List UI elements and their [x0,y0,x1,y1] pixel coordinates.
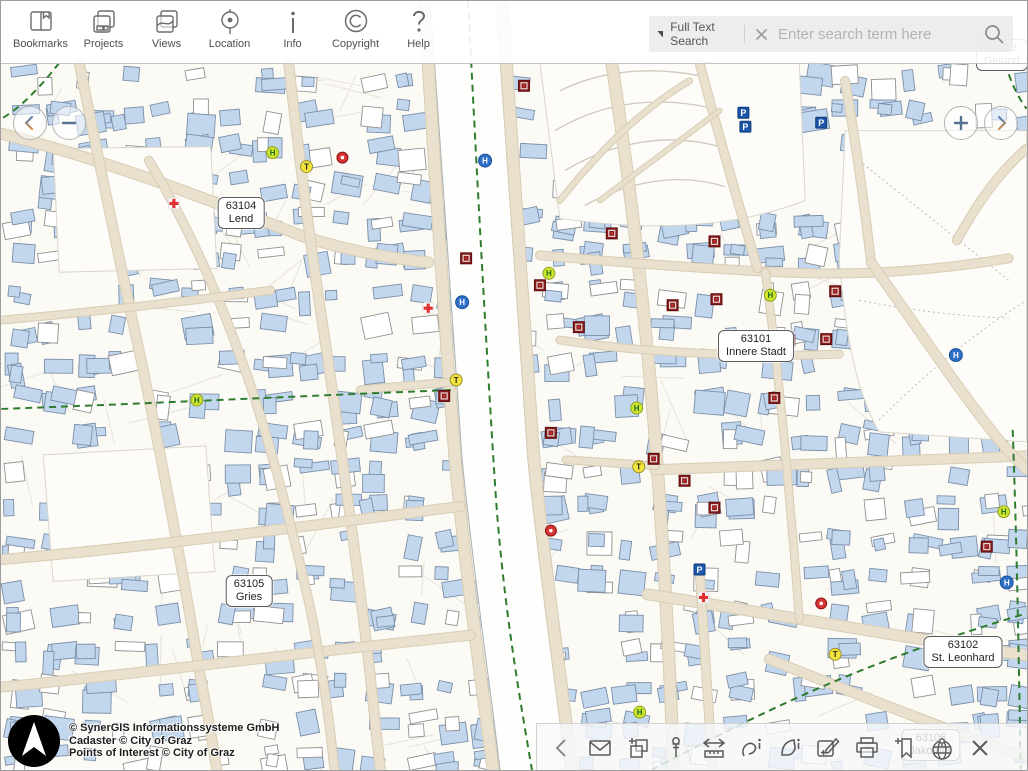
stacked-pages-icon [89,7,119,37]
map-canvas[interactable]: HHHHHHHHHHHTTTTPPPP [1,1,1027,770]
polygon-info-icon [777,735,803,761]
svg-text:T: T [454,376,459,385]
help-label: Help [407,38,430,50]
projects-button[interactable]: Projects [72,7,135,50]
map-pages-icon [152,7,182,37]
help-button[interactable]: Help [387,7,450,50]
map-attribution: © SynerGIS Informationssysteme GmbH Cada… [7,714,279,768]
send-mail-button[interactable] [581,729,619,767]
views-button[interactable]: Views [135,7,198,50]
print-button[interactable] [847,729,885,767]
pin-button[interactable] [657,729,695,767]
map-application-window: HHHHHHHHHHHTTTTPPPP 63104Lend63101Innere… [0,0,1028,771]
poi-red-cross[interactable] [698,592,709,603]
search-input[interactable] [776,25,979,44]
chevron-left-icon [22,115,38,131]
projects-label: Projects [84,38,124,50]
top-toolbar: Bookmarks Projects Views [1,1,1027,64]
zoom-in-button[interactable] [944,106,978,140]
bookmark-plus-icon [891,735,917,761]
poi-red-circle[interactable] [816,598,827,609]
pan-left-button[interactable] [13,106,47,140]
search-filter-label: Full Text Search [670,20,718,48]
search-clear-button[interactable] [755,28,768,41]
copyright-label: Copyright [332,38,379,50]
info-label: Info [283,38,301,50]
book-icon [26,7,56,37]
measure-ruler-icon [701,735,727,761]
plus-icon [952,114,970,132]
draw-edit-button[interactable] [809,729,847,767]
copyright-text: © SynerGIS Informationssysteme GmbH Cada… [69,722,279,760]
svg-text:H: H [194,396,200,405]
svg-text:H: H [767,291,773,300]
overview-map-button[interactable] [923,729,961,767]
svg-text:P: P [818,118,824,128]
minus-icon [60,114,78,132]
chevron-right-icon [993,115,1009,131]
layers-plus-icon [625,735,651,761]
toolbar-collapse-button[interactable] [543,729,581,767]
target-icon [215,7,245,37]
location-label: Location [209,38,251,50]
copyright-line: Cadaster © City of Graz [69,735,279,748]
add-bookmark-button[interactable] [885,729,923,767]
info-icon [278,7,308,37]
svg-text:P: P [697,565,703,575]
svg-text:H: H [1001,508,1007,517]
poi-red-circle[interactable] [337,152,348,163]
svg-text:H: H [482,156,488,165]
question-icon [404,7,434,37]
printer-icon [853,735,879,761]
svg-text:T: T [636,463,641,472]
triangle-down-icon [657,30,663,38]
pan-right-button[interactable] [984,106,1018,140]
svg-text:T: T [304,162,309,171]
zoom-out-button[interactable] [52,106,86,140]
location-button[interactable]: Location [198,7,261,50]
copy-overlay-button[interactable] [619,729,657,767]
chevron-left-icon [549,735,575,761]
search-submit-button[interactable] [983,23,1005,45]
svg-text:H: H [637,708,643,717]
close-icon [967,735,993,761]
bottom-toolbar [536,723,1027,771]
copyright-line: Points of Interest © City of Graz [69,747,279,760]
poi-red-cross[interactable] [168,198,179,209]
bookmarks-label: Bookmarks [13,38,68,50]
svg-text:P: P [740,108,746,118]
svg-text:P: P [742,122,748,132]
views-label: Views [152,38,181,50]
svg-text:H: H [459,298,465,307]
close-toolbar-button[interactable] [961,729,999,767]
svg-text:H: H [1004,578,1010,587]
svg-text:H: H [546,269,552,278]
svg-text:H: H [634,404,640,413]
svg-text:T: T [833,650,838,659]
info-button[interactable]: Info [261,7,324,50]
search-filter-dropdown[interactable]: Full Text Search [657,20,718,48]
search-bar: Full Text Search [649,16,1013,52]
main-menu: Bookmarks Projects Views [1,1,450,50]
identify-area-button[interactable] [771,729,809,767]
svg-text:H: H [270,148,276,157]
bookmarks-button[interactable]: Bookmarks [9,7,72,50]
identify-line-button[interactable] [733,729,771,767]
poi-red-circle[interactable] [545,525,556,536]
north-arrow-logo [7,714,61,768]
pushpin-icon [663,735,689,761]
divider [744,25,745,43]
measure-button[interactable] [695,729,733,767]
line-info-icon [739,735,765,761]
svg-text:H: H [953,351,959,360]
poi-red-cross[interactable] [423,303,434,314]
copyright-icon [341,7,371,37]
envelope-icon [587,735,613,761]
search-icon [983,23,1005,45]
copyright-button[interactable]: Copyright [324,7,387,50]
copyright-line: © SynerGIS Informationssysteme GmbH [69,722,279,735]
globe-pin-icon [929,735,955,761]
close-icon [755,28,768,41]
edit-pencil-plus-icon [815,735,841,761]
